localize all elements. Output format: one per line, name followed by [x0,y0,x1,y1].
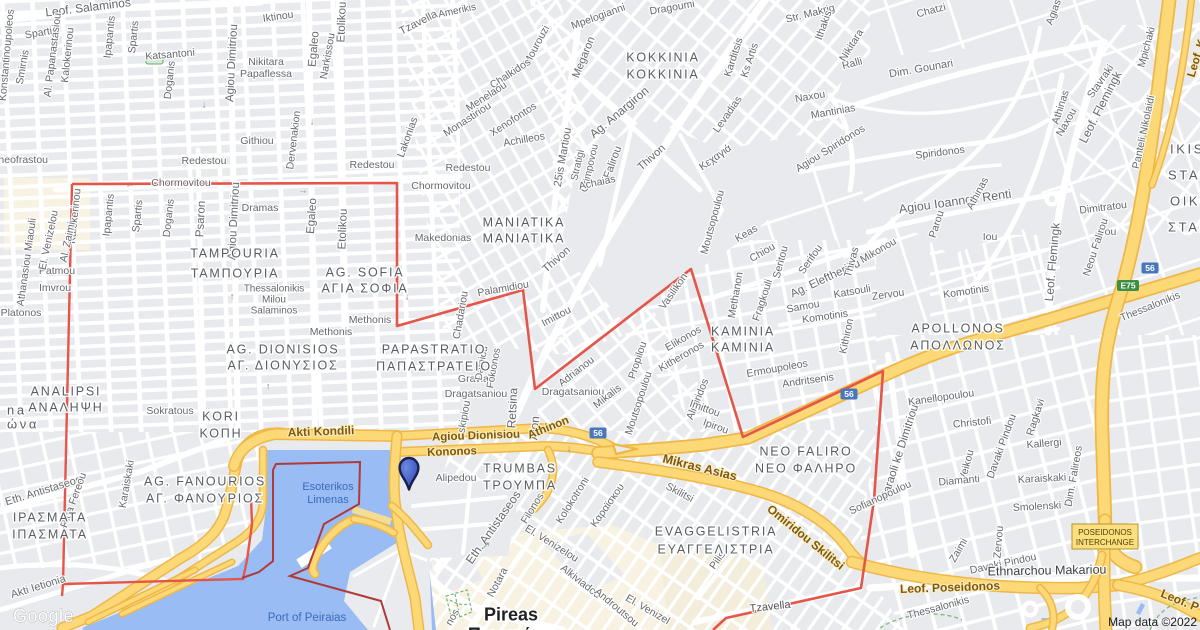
svg-text:Ethnarchou Makariou: Ethnarchou Makariou [987,562,1106,578]
svg-text:ΚΑΜΙΝΙΑ: ΚΑΜΙΝΙΑ [711,341,775,355]
svg-text:↗: ↗ [482,541,490,552]
svg-text:Port of Peiraias: Port of Peiraias [268,612,347,624]
svg-text:Thessalonikis: Thessalonikis [244,284,305,295]
svg-text:↓: ↓ [567,444,572,455]
svg-text:ΑΝΑΛΗΨΗ: ΑΝΑΛΗΨΗ [28,401,103,415]
svg-text:ANALIPSI: ANALIPSI [31,385,102,399]
svg-text:Karaiskaki: Karaiskaki [1018,472,1067,487]
svg-text:↓: ↓ [202,100,207,111]
svg-text:ΠΑΠΑΣΤΡΑΤΕΙΟ: ΠΑΠΑΣΤΡΑΤΕΙΟ [376,360,492,374]
svg-text:ώνα: ώνα [7,417,39,432]
svg-text:Theofrastou: Theofrastou [0,154,48,166]
svg-text:Makedonias: Makedonias [415,232,472,244]
svg-text:Akti Kondili: Akti Kondili [287,423,354,439]
svg-text:56: 56 [1145,263,1155,273]
svg-text:ΤΡΟΥΜΠΑ: ΤΡΟΥΜΠΑ [483,479,557,493]
svg-text:Imvrou: Imvrou [39,282,71,294]
svg-text:TAMPOURIA: TAMPOURIA [190,247,280,261]
svg-text:ΑΓΙΑ ΣΟΦΙΑ: ΑΓΙΑ ΣΟΦΙΑ [321,282,408,296]
svg-text:Redestou: Redestou [446,162,491,174]
svg-text:INTERCHANGE: INTERCHANGE [1076,538,1134,547]
svg-text:MANIATIKA: MANIATIKA [483,216,566,230]
svg-text:Sokratous: Sokratous [146,405,193,417]
svg-text:ΑΓ. ΦΑΝΟΥΡΙΟΣ: ΑΓ. ΦΑΝΟΥΡΙΟΣ [146,492,264,506]
svg-text:Redestou: Redestou [182,155,227,167]
svg-text:→: → [298,186,308,197]
svg-text:Methonis: Methonis [349,314,392,326]
svg-text:Milou: Milou [262,295,286,306]
svg-text:Dragatsaniou: Dragatsaniou [445,388,508,400]
svg-text:Dragatsaniou: Dragatsaniou [542,386,605,398]
svg-text:ΕΥΑΓΓΕΛΙΣΤΡΙΑ: ΕΥΑΓΓΕΛΙΣΤΡΙΑ [658,543,775,557]
svg-text:↑: ↑ [266,382,271,393]
svg-text:Iou: Iou [983,231,998,243]
svg-text:EVAGGELISTRIA: EVAGGELISTRIA [655,525,778,539]
svg-text:Etolikou: Etolikou [335,1,348,42]
svg-text:OIKI: OIKI [1170,194,1200,209]
svg-text:Papaflessa: Papaflessa [240,68,292,80]
svg-text:Smolenski: Smolenski [1013,500,1062,515]
svg-text:ΜΑΝΙΑΤΙΚΑ: ΜΑΝΙΑΤΙΚΑ [483,232,566,246]
svg-text:ΤΑΜΠΟΥΡΙΑ: ΤΑΜΠΟΥΡΙΑ [191,267,280,281]
svg-text:Etolikou: Etolikou [336,208,349,249]
svg-text:AG. SOFIA: AG. SOFIA [326,266,405,280]
svg-text:Limenas: Limenas [307,494,349,506]
svg-text:APOLLONOS: APOLLONOS [911,322,1004,336]
svg-text:AG. DIONISIOS: AG. DIONISIOS [227,343,340,357]
svg-text:POSEIDONOS: POSEIDONOS [1078,528,1132,537]
svg-text:na: na [7,403,27,418]
svg-text:Google: Google [13,606,74,626]
svg-text:IKIS: IKIS [1170,142,1200,157]
svg-text:Githiou: Githiou [240,135,273,147]
svg-text:Chormovitou: Chormovitou [151,177,211,189]
svg-text:Map data ©2022: Map data ©2022 [1108,615,1197,629]
svg-text:↓: ↓ [310,117,315,128]
svg-text:KORI: KORI [202,410,240,424]
svg-text:Retsina: Retsina [504,387,520,429]
svg-text:KAMINIA: KAMINIA [711,325,775,339]
svg-text:ΚΟΚΚΙΝΙΑ: ΚΟΚΚΙΝΙΑ [626,68,699,82]
svg-text:ΝΕΟ ΦΑΛΗΡΟ: ΝΕΟ ΦΑΛΗΡΟ [755,462,857,476]
svg-text:Kononos: Kononos [427,445,477,459]
svg-text:Dramas: Dramas [242,202,279,214]
svg-text:Platonos: Platonos [1,307,42,319]
svg-text:ΣΤΑΜΑ: ΣΤΑΜΑ [1168,220,1200,235]
svg-text:Psaron: Psaron [194,201,208,238]
svg-text:TRUMBAS: TRUMBAS [483,462,557,476]
svg-text:Egaleo: Egaleo [305,198,319,235]
svg-text:KOKKINIA: KOKKINIA [626,51,699,65]
svg-text:Nikitara: Nikitara [248,56,284,68]
svg-text:Πειραιάς: Πειραιάς [468,624,542,630]
svg-text:56: 56 [593,428,603,438]
svg-text:ΑΓ. ΔΙΟΝΥΣΙΟΣ: ΑΓ. ΔΙΟΝΥΣΙΟΣ [227,359,338,373]
svg-text:Methonis: Methonis [310,326,353,338]
svg-text:Salaminos: Salaminos [251,306,298,317]
svg-text:↑: ↑ [230,292,235,303]
svg-text:AG. FANOURIOS: AG. FANOURIOS [144,475,266,489]
svg-text:Chormovitou: Chormovitou [411,180,471,192]
svg-text:Alipedou: Alipedou [436,472,477,484]
svg-text:PAPASTRATIO: PAPASTRATIO [382,343,487,357]
svg-text:Redestou: Redestou [350,159,395,171]
svg-text:Pireas: Pireas [484,604,538,624]
svg-text:ΙΡΑΣΜΑΤΑ: ΙΡΑΣΜΑΤΑ [13,511,87,525]
svg-text:56: 56 [844,389,854,399]
svg-text:ΚΟΠΗ: ΚΟΠΗ [200,427,243,441]
svg-text:ΑΠΟΛΛΩΝΟΣ: ΑΠΟΛΛΩΝΟΣ [910,339,1006,353]
svg-text:ΙΠΑΣΜΑΤΑ: ΙΠΑΣΜΑΤΑ [12,528,88,542]
svg-text:STAMA: STAMA [1168,168,1200,183]
svg-text:E75: E75 [1120,281,1135,291]
svg-text:NEO FALIRO: NEO FALIRO [759,445,852,459]
svg-text:←: ← [125,180,135,191]
svg-text:Esoterikos: Esoterikos [302,481,354,493]
